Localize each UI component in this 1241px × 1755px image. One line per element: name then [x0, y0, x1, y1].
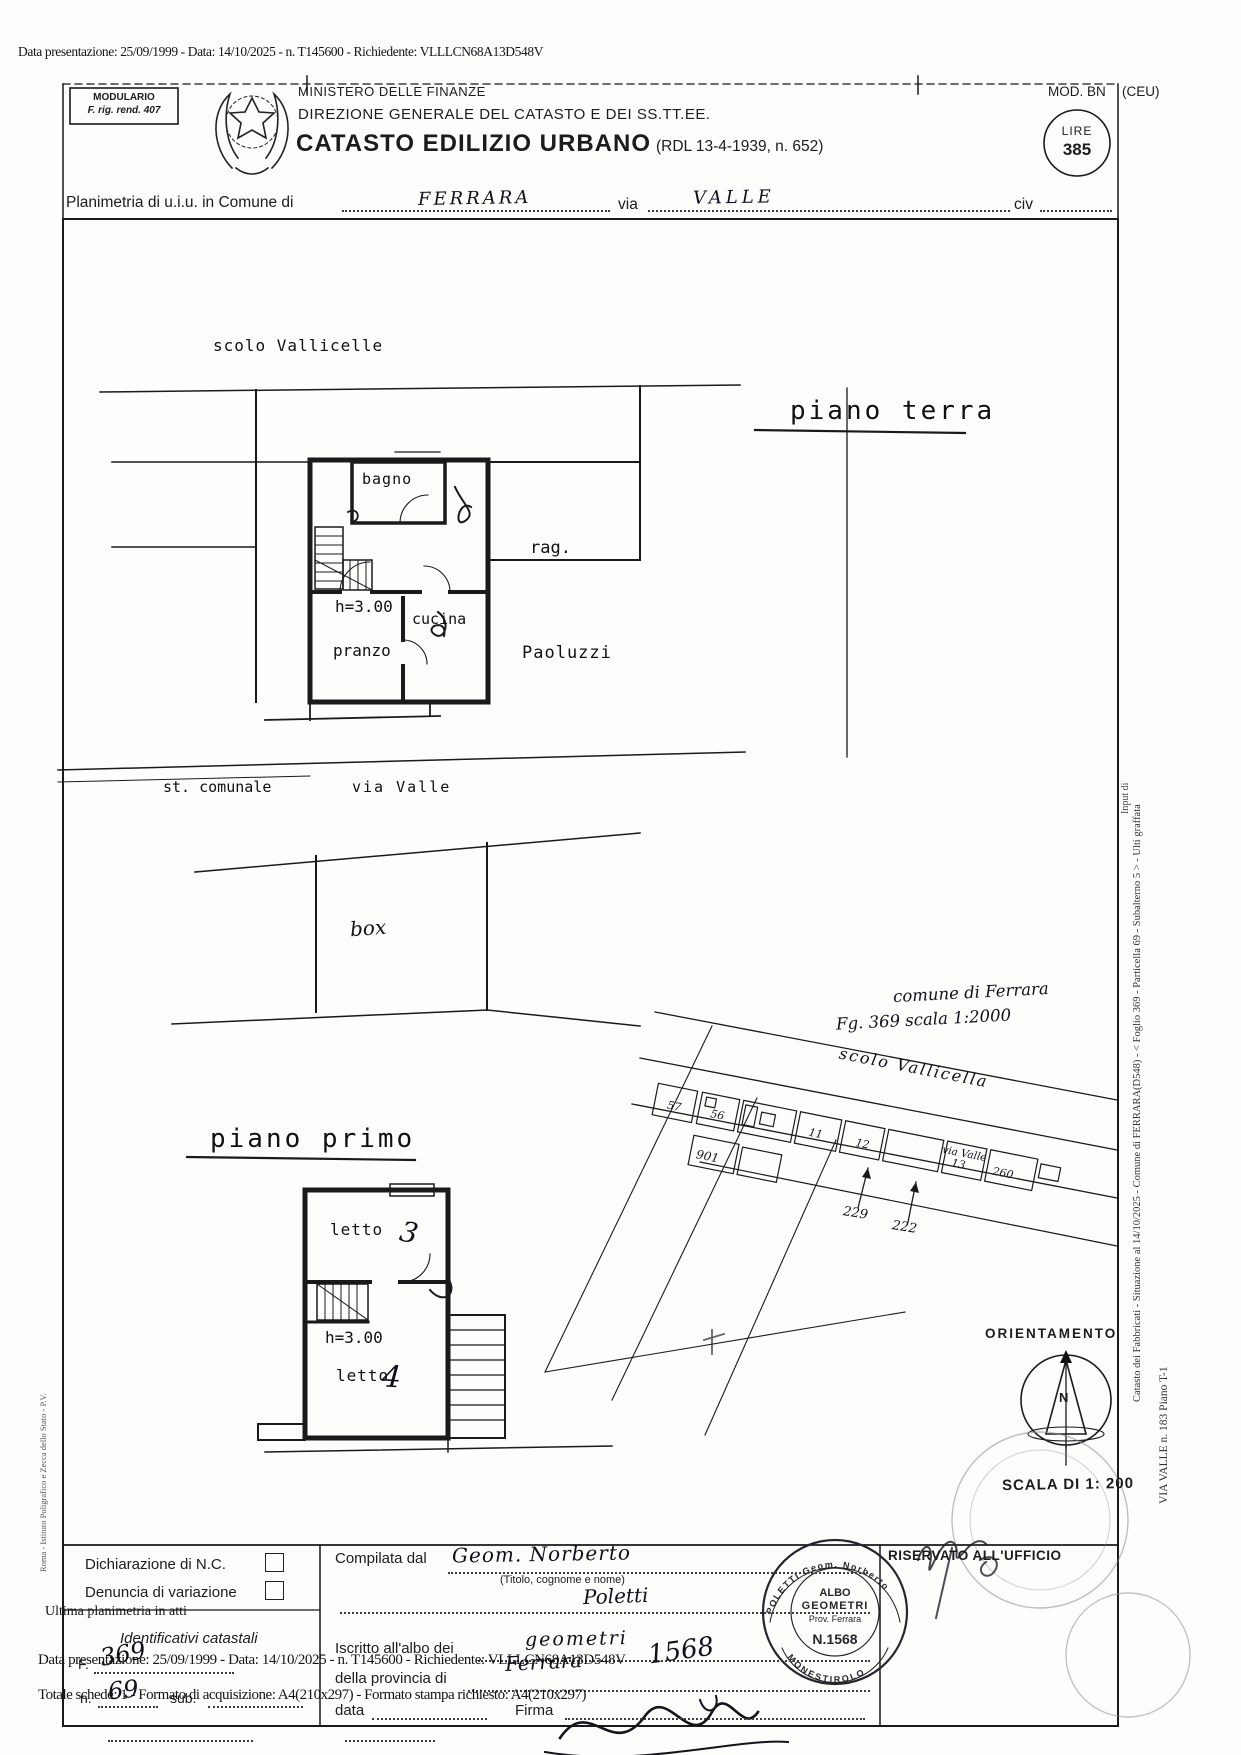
- nc-checkbox: [265, 1553, 284, 1572]
- right-margin-note-sub: VIA VALLE n. 183 Piano T-1: [1158, 1304, 1170, 1504]
- subject-prefix: Planimetria di u.i.u. in Comune di: [66, 194, 293, 212]
- pen-marks: [704, 1330, 997, 1618]
- parcel-number: 57: [666, 1099, 682, 1114]
- dotted-leader: [565, 1716, 865, 1720]
- date-label: data: [335, 1702, 364, 1719]
- dotted-leader: [340, 1610, 870, 1614]
- canal-label: scolo Vallicelle: [213, 336, 383, 355]
- handwriting-scribble: [455, 487, 471, 522]
- sign-label: Firma: [515, 1702, 553, 1719]
- scale-label: SCALA DI 1: 200: [1002, 1475, 1134, 1494]
- surname-handwritten: Poletti: [583, 1583, 649, 1609]
- dotted-leader: [648, 208, 1010, 212]
- parcel-number: 12: [854, 1136, 870, 1151]
- room-label-dining: pranzo: [333, 641, 391, 660]
- dotted-leader: [108, 1738, 253, 1742]
- presentation-overprint: Data presentazione: 25/09/1999 - Data: 1…: [18, 44, 543, 60]
- first-floor-title: piano primo: [210, 1124, 415, 1154]
- garage-handwritten: box: [349, 915, 387, 941]
- compiled-by-handwritten: Geom. Norberto: [452, 1540, 631, 1567]
- bed4-number-handwritten: 4: [381, 1359, 402, 1395]
- dotted-leader: [345, 1738, 435, 1742]
- document-sheet: POLETTI Geom. Norberto MONESTIROLO ALBO …: [0, 0, 1241, 1755]
- room-label-bed3: letto: [330, 1220, 383, 1239]
- road-label-2: via Valle: [352, 778, 451, 796]
- right-margin-note-small: Input di: [1120, 754, 1131, 814]
- map-parcel-numbers: 57 56 11 12 13 260 901: [658, 1098, 1015, 1223]
- ministry-name: MINISTERO DELLE FINANZE: [298, 84, 486, 99]
- first-floor-plan: [187, 1157, 612, 1452]
- variation-checkbox: [265, 1581, 284, 1600]
- register-title: CATASTO EDILIZIO URBANO: [296, 130, 651, 158]
- dotted-leader: [1040, 208, 1112, 212]
- road-label: st. comunale: [163, 778, 271, 796]
- stamp-line-albo: ALBO: [819, 1587, 851, 1599]
- dotted-leader: [208, 1704, 303, 1708]
- lire-amount: 385: [1047, 140, 1107, 160]
- office-reserved-label: RISERVATO ALL'UFFICIO: [888, 1548, 1061, 1563]
- parcel-number: 56: [709, 1107, 725, 1122]
- compass-rose-icon: [1021, 1350, 1111, 1465]
- ground-floor-title: piano terra: [790, 396, 995, 426]
- neighbor-title: rag.: [530, 538, 571, 558]
- orientation-label: ORIENTAMENTO: [985, 1326, 1117, 1341]
- directorate-name: DIREZIONE GENERALE DEL CATASTO E DEI SS.…: [298, 106, 711, 123]
- dotted-leader: [94, 1670, 234, 1674]
- neighbor-name: Paoluzzi: [522, 643, 612, 663]
- parcel-number: 260: [990, 1164, 1014, 1181]
- room-label-kitchen: cucina: [412, 610, 466, 628]
- province-handwritten: Ferrara: [504, 1648, 582, 1676]
- lire-word: LIRE: [1047, 124, 1107, 138]
- last-plan-overprint: Ultima planimetria in atti: [45, 1604, 187, 1620]
- right-margin-note-main: Catasto dei Fabbricati - Situazione al 1…: [1132, 572, 1143, 1402]
- modulario-subtitle: F. rig. rend. 407: [70, 105, 178, 116]
- via-label: via: [618, 196, 638, 214]
- north-letter: N: [1059, 1390, 1068, 1405]
- footer-overprint-2: Totale schede: 1 - Formato di acquisizio…: [38, 1687, 586, 1704]
- variation-label: Denuncia di variazione: [85, 1584, 237, 1601]
- stamp-line-prov: Prov. Ferrara: [809, 1614, 861, 1624]
- declaration-nc-label: Dichiarazione di N.C.: [85, 1556, 226, 1573]
- dotted-leader: [372, 1716, 487, 1720]
- mod-label: MOD. BN: [1048, 84, 1106, 99]
- province-label: della provincia di: [335, 1670, 447, 1687]
- state-emblem-icon: [216, 94, 288, 174]
- compiled-by-label: Compilata dal: [335, 1550, 427, 1567]
- sheet-frame: [63, 76, 1118, 1726]
- faint-office-stamp: [952, 1432, 1190, 1717]
- left-margin-note: Roma - Istituto Poligrafico e Zecca dell…: [38, 1282, 48, 1572]
- ground-height-label: h=3.00: [335, 597, 393, 616]
- modulario-title: MODULARIO: [70, 92, 178, 103]
- dotted-leader: [98, 1704, 158, 1708]
- mod-suffix: (CEU): [1122, 84, 1160, 99]
- parcel-number: 11: [807, 1126, 823, 1141]
- civ-label: civ: [1014, 196, 1033, 214]
- room-label-bath: bagno: [362, 470, 412, 488]
- parcel-number: 901: [695, 1147, 720, 1165]
- ground-floor-plan: [58, 385, 965, 782]
- stamp-number: N.1568: [812, 1631, 857, 1647]
- comune-handwritten: FERRARA: [418, 187, 532, 210]
- garage-strip: [172, 833, 640, 1026]
- via-handwritten: VALLE: [693, 186, 775, 208]
- first-height-label: h=3.00: [325, 1328, 383, 1347]
- register-reference: (RDL 13-4-1939, n. 652): [656, 138, 823, 156]
- registered-label: Iscritto all'albo dei: [335, 1640, 454, 1657]
